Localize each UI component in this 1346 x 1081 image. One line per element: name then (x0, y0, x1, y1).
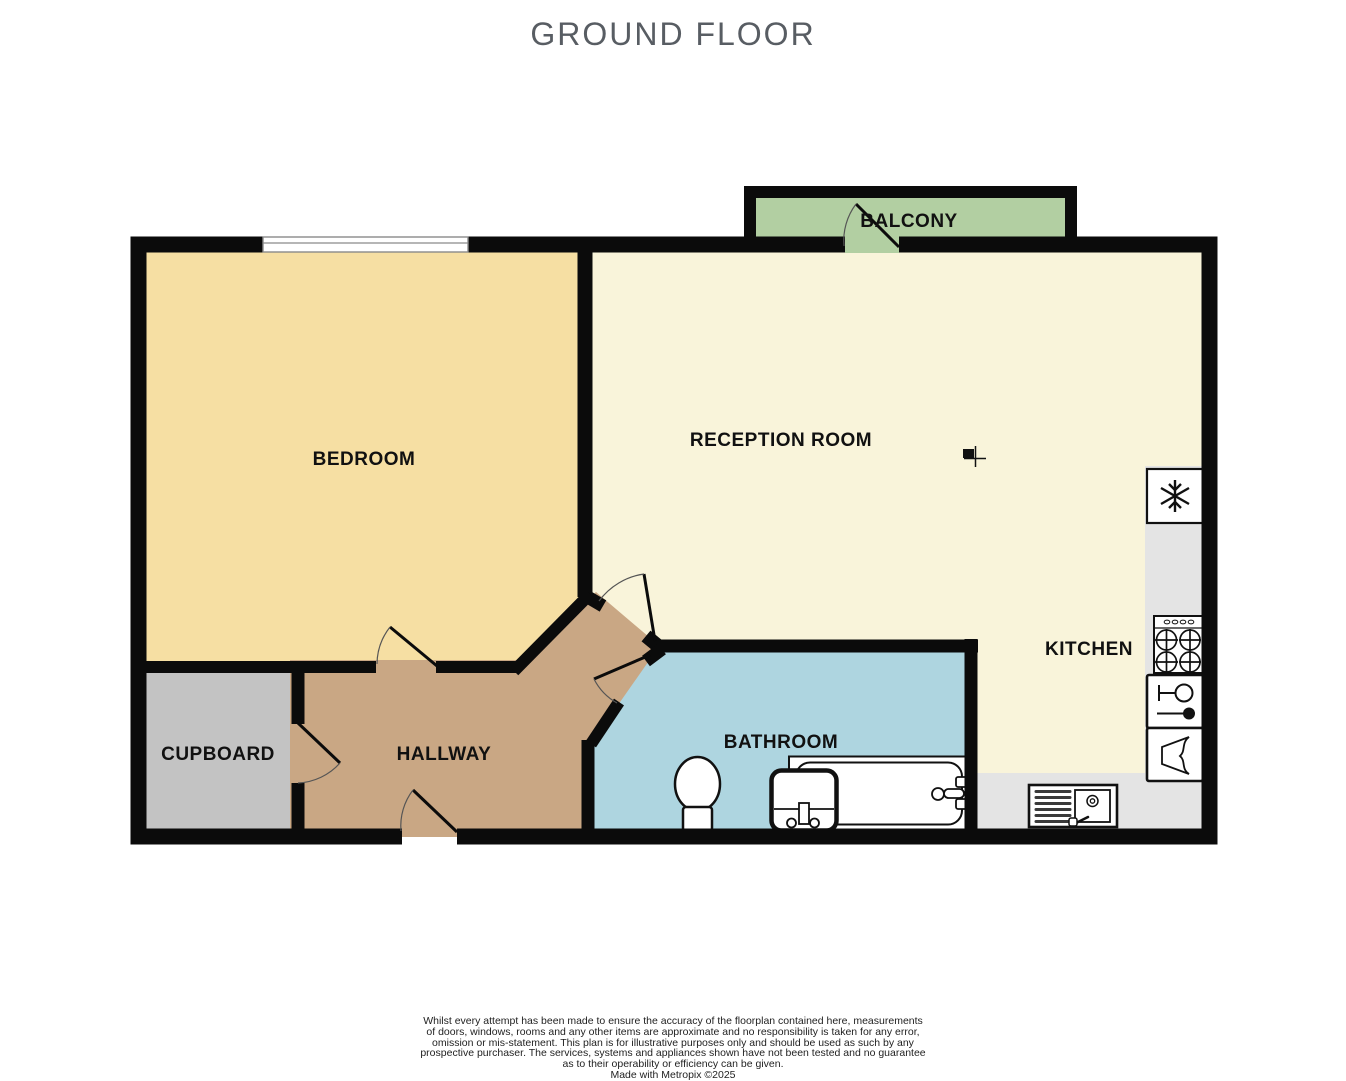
room-label-kitchen: KITCHEN (1045, 639, 1133, 660)
room-label-hallway: HALLWAY (397, 744, 492, 765)
disclaimer-line: of doors, windows, rooms and any other i… (413, 1027, 933, 1038)
dishwasher-icon (1147, 675, 1203, 728)
room-label-reception: RECEPTION ROOM (690, 430, 872, 451)
hob-icon (1154, 616, 1203, 673)
room-label-bathroom: BATHROOM (724, 732, 838, 753)
basin-icon (772, 771, 837, 831)
disclaimer: Whilst every attempt has been made to en… (413, 1016, 933, 1081)
fridge-freezer (1147, 469, 1203, 523)
floorplan: BALCONY BEDROOM RECEPTION ROOM KITCHEN C… (0, 0, 1346, 1080)
metropix-credit: Made with Metropix ©2025 (413, 1070, 933, 1081)
room-label-bedroom: BEDROOM (313, 449, 416, 470)
washing-machine-icon (1147, 728, 1203, 781)
room-label-cupboard: CUPBOARD (161, 744, 275, 765)
sink-drainer-icon (1029, 785, 1117, 827)
room-label-balcony: BALCONY (860, 211, 957, 232)
toilet-icon (675, 757, 720, 831)
window (263, 237, 468, 252)
